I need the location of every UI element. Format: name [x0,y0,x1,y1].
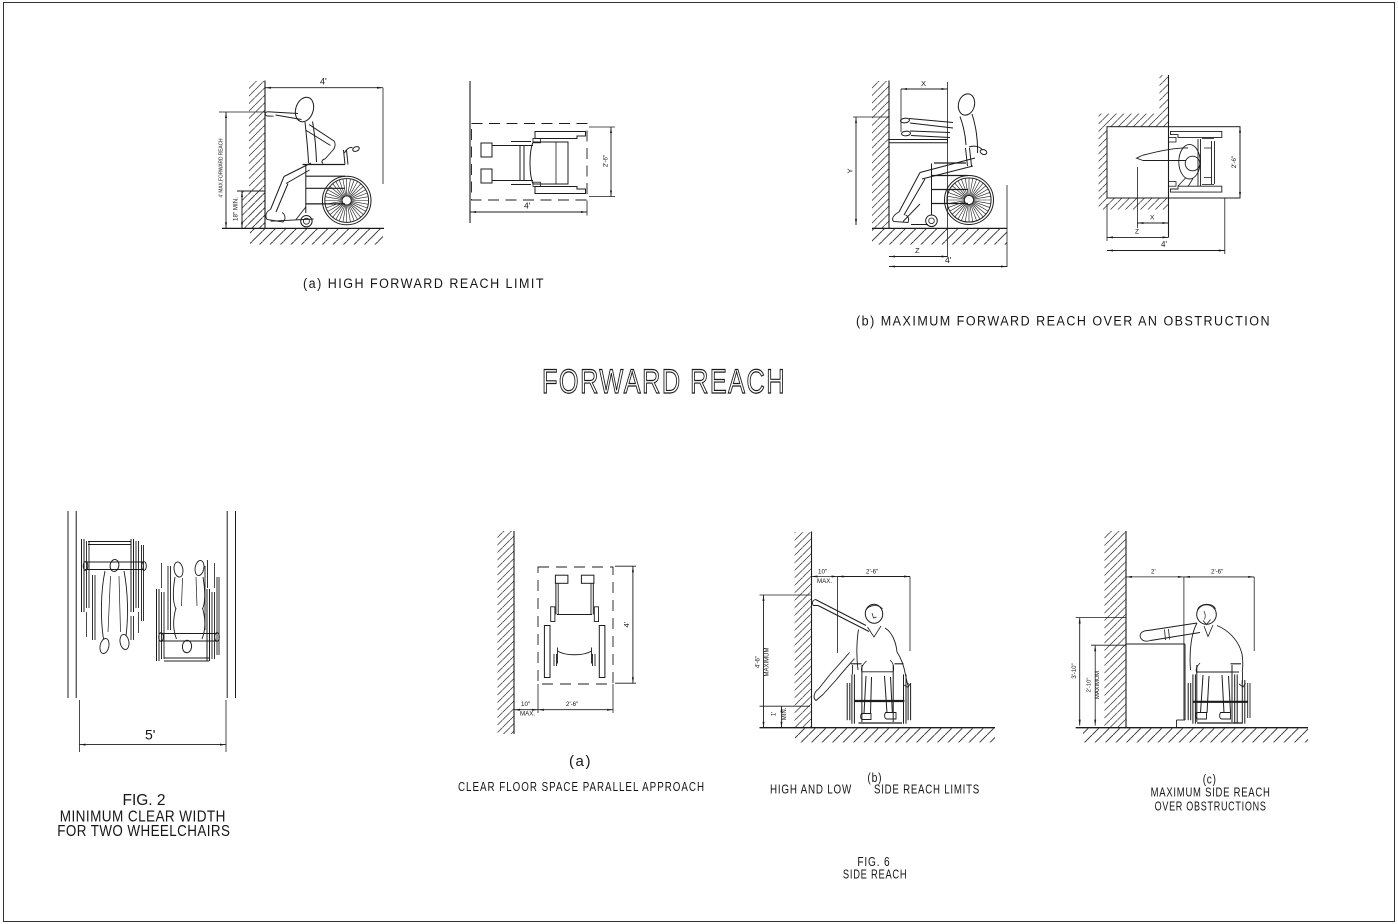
svg-text:MAX.: MAX. [817,578,832,585]
svg-text:4': 4' [320,77,327,87]
svg-text:X: X [1150,215,1155,222]
svg-text:2'-6": 2'-6" [566,701,578,708]
svg-text:2'-6": 2'-6" [1231,156,1238,168]
svg-text:1': 1' [772,712,778,716]
svg-text:2'-10": 2'-10" [1087,678,1093,693]
svg-text:4': 4' [945,255,952,265]
svg-text:FOR TWO WHEELCHAIRS: FOR TWO WHEELCHAIRS [57,823,230,840]
svg-text:2'-6": 2'-6" [1211,569,1223,576]
svg-text:5': 5' [145,727,155,743]
svg-text:HIGH AND LOW: HIGH AND LOW [770,783,852,797]
svg-text:Y: Y [846,168,855,173]
svg-text:(a) HIGH FORWARD REACH LIM: (a) HIGH FORWARD REACH LIMIT [303,276,545,291]
svg-text:OVER OBSTRUCTIONS: OVER OBSTRUCTIONS [1155,800,1267,814]
svg-text:10": 10" [521,701,530,708]
svg-text:FORWARD REACH: FORWARD REACH [542,363,786,401]
svg-text:3'-10": 3'-10" [1072,663,1078,678]
svg-text:CLEAR FLOOR SPACE PARALLE: CLEAR FLOOR SPACE PARALLEL APPROACH [458,779,705,794]
svg-text:FIG. 2: FIG. 2 [123,792,166,809]
svg-text:4' MAX.FORWARD REACH: 4' MAX.FORWARD REACH [219,139,225,198]
svg-text:MAXIMUM SIDE REACH: MAXIMUM SIDE REACH [1151,786,1271,800]
svg-text:10": 10" [818,569,827,576]
svg-text:Z: Z [1135,229,1139,236]
svg-text:4'-6": 4'-6" [756,656,762,668]
svg-text:MAXIMUM: MAXIMUM [1095,671,1101,699]
svg-text:(a): (a) [569,754,592,770]
svg-text:2'-6": 2'-6" [866,569,878,576]
svg-text:4': 4' [1161,240,1167,249]
svg-text:(b) MAXIMUM FORWARD REACH: (b) MAXIMUM FORWARD REACH OVER AN OBSTRU… [856,314,1271,329]
svg-text:SIDE REACH: SIDE REACH [843,868,908,882]
svg-text:2'-6": 2'-6" [603,155,610,167]
svg-text:2': 2' [1151,569,1156,576]
svg-text:4': 4' [622,621,631,627]
svg-text:SIDE REACH LIMITS: SIDE REACH LIMITS [874,783,980,797]
svg-text:MAX.: MAX. [520,711,535,718]
svg-text:MAXIMUM: MAXIMUM [765,648,771,677]
svg-text:MIN.: MIN. [782,707,788,720]
svg-text:(c): (c) [1203,772,1217,787]
svg-text:4': 4' [524,201,531,211]
svg-text:X: X [921,79,926,88]
svg-text:Z: Z [915,246,920,255]
svg-text:18" MIN.: 18" MIN. [233,197,240,221]
